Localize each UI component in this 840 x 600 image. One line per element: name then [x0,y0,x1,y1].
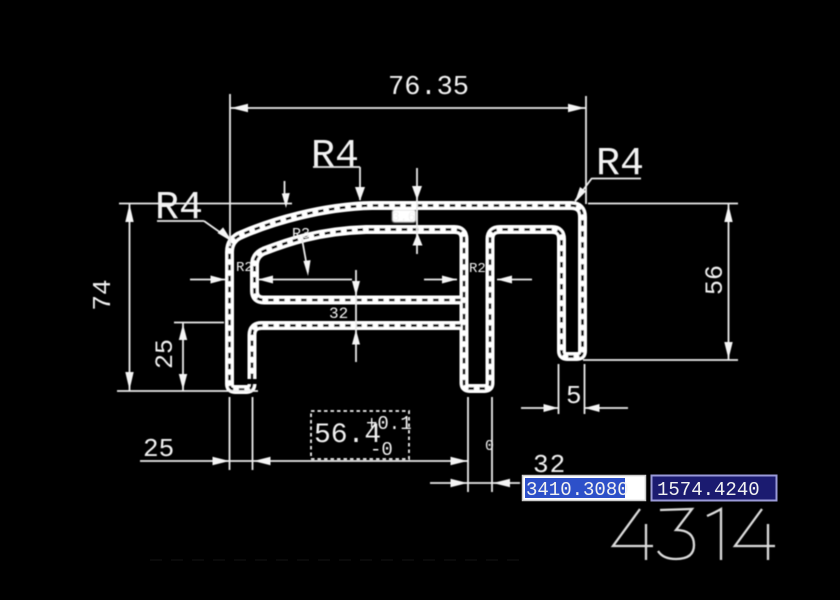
svg-text:56: 56 [701,265,730,295]
svg-text:0: 0 [485,438,494,455]
svg-text:R2: R2 [469,261,486,277]
svg-text:25: 25 [151,339,180,369]
svg-text:32: 32 [329,305,348,323]
svg-text:1574.4240: 1574.4240 [657,479,760,501]
svg-text:R3: R3 [292,226,310,243]
svg-text:74: 74 [88,279,118,310]
svg-text:R4: R4 [311,134,359,179]
svg-text:R4: R4 [596,142,644,187]
svg-text:3.6: 3.6 [392,210,415,225]
svg-text:3410.3080: 3410.3080 [526,479,629,501]
svg-text:5: 5 [566,381,582,411]
svg-text:-0: -0 [370,439,393,461]
svg-text:76.35: 76.35 [388,73,469,103]
svg-text:+0.1: +0.1 [366,413,412,435]
svg-text:25: 25 [143,434,174,464]
svg-text:R4: R4 [155,186,203,231]
svg-text:R2: R2 [236,260,253,276]
